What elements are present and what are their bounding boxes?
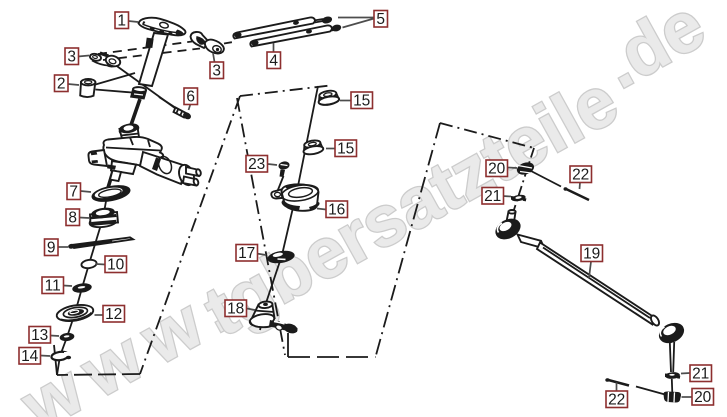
svg-text:15: 15 [353,92,370,109]
svg-text:17: 17 [238,245,255,262]
svg-text:3: 3 [212,62,221,79]
svg-text:18: 18 [227,300,244,317]
svg-text:20: 20 [694,389,712,406]
svg-text:16: 16 [328,201,345,218]
svg-text:14: 14 [21,348,39,365]
svg-text:1: 1 [117,12,126,29]
svg-text:22: 22 [608,391,625,408]
svg-text:20: 20 [488,160,506,177]
svg-text:7: 7 [69,183,78,200]
svg-text:12: 12 [105,306,122,323]
svg-text:6: 6 [186,88,195,105]
svg-text:21: 21 [692,365,709,382]
svg-text:23: 23 [248,156,265,173]
svg-text:21: 21 [484,188,501,205]
svg-text:3: 3 [67,48,76,65]
svg-text:19: 19 [583,245,600,262]
svg-text:2: 2 [57,75,66,92]
svg-text:15: 15 [337,140,354,157]
svg-text:9: 9 [47,239,56,256]
svg-text:8: 8 [68,209,77,226]
svg-text:4: 4 [269,52,278,69]
svg-text:11: 11 [45,277,61,294]
svg-text:13: 13 [31,327,48,344]
svg-text:5: 5 [376,11,385,28]
svg-text:10: 10 [107,256,125,273]
svg-text:22: 22 [572,166,589,183]
